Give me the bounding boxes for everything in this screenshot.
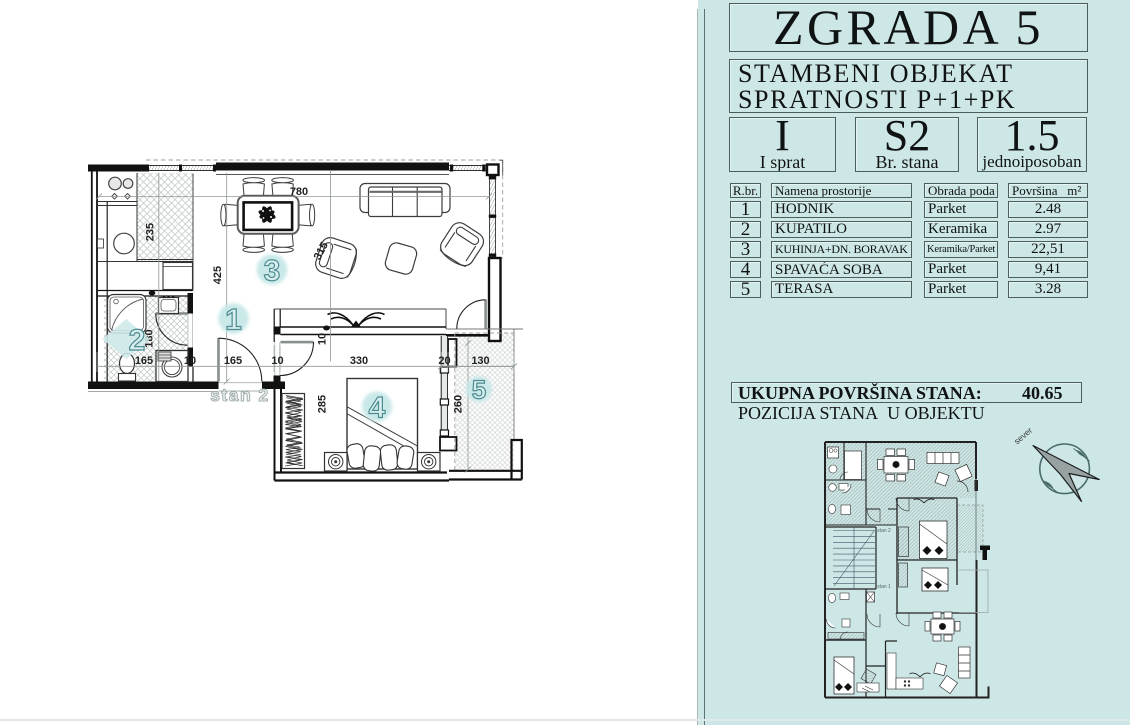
svg-text:165: 165: [224, 355, 242, 367]
svg-text:1: 1: [225, 303, 242, 336]
svg-text:stan 2: stan 2: [210, 385, 270, 405]
svg-text:10: 10: [184, 355, 196, 367]
svg-text:4: 4: [369, 391, 386, 424]
svg-text:260: 260: [453, 395, 465, 413]
svg-text:285: 285: [317, 395, 329, 413]
svg-text:stan 1: stan 1: [877, 584, 891, 590]
svg-text:130: 130: [471, 355, 489, 367]
svg-text:780: 780: [290, 186, 308, 198]
svg-text:235: 235: [145, 223, 157, 241]
svg-text:10: 10: [317, 333, 329, 345]
svg-text:2: 2: [129, 324, 146, 357]
svg-text:330: 330: [350, 355, 368, 367]
svg-text:10: 10: [271, 355, 283, 367]
svg-text:20: 20: [438, 355, 450, 367]
svg-text:425: 425: [212, 266, 224, 284]
svg-text:sever: sever: [1012, 425, 1034, 446]
svg-text:stan 2: stan 2: [877, 528, 891, 534]
svg-text:5: 5: [472, 374, 486, 404]
svg-text:3: 3: [264, 254, 281, 287]
